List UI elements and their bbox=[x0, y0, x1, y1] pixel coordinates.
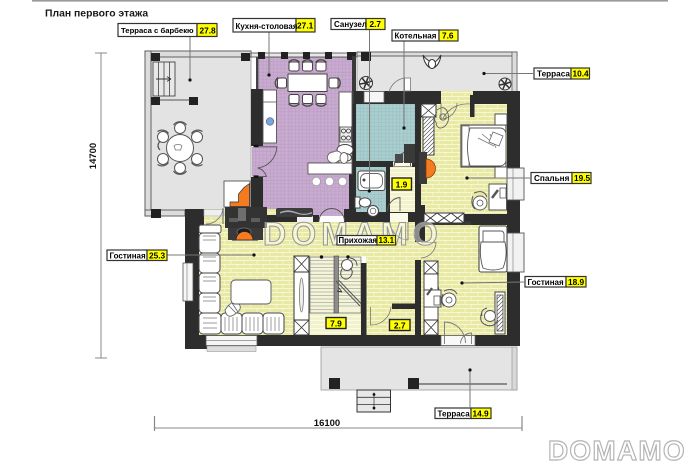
svg-text:7.6: 7.6 bbox=[442, 31, 454, 41]
svg-text:Терраса: Терраса bbox=[537, 70, 570, 79]
svg-text:19.5: 19.5 bbox=[574, 173, 591, 183]
svg-text:16100: 16100 bbox=[314, 418, 340, 429]
svg-text:27.1: 27.1 bbox=[297, 21, 314, 31]
svg-text:План первого этажа: План первого этажа bbox=[45, 9, 148, 20]
svg-text:27.8: 27.8 bbox=[200, 25, 217, 35]
svg-text:Гостиная: Гостиная bbox=[110, 251, 146, 260]
svg-text:DOMAMO: DOMAMO bbox=[263, 216, 443, 252]
svg-text:Прихожая: Прихожая bbox=[339, 236, 377, 245]
svg-text:10.4: 10.4 bbox=[573, 69, 590, 79]
svg-text:14700: 14700 bbox=[88, 143, 99, 169]
svg-text:Котельная: Котельная bbox=[395, 32, 437, 41]
svg-text:Кухня-столовая: Кухня-столовая bbox=[236, 22, 298, 31]
svg-text:2.7: 2.7 bbox=[394, 320, 406, 330]
svg-text:7.9: 7.9 bbox=[330, 318, 342, 328]
svg-text:Гостиная: Гостиная bbox=[528, 278, 564, 287]
svg-text:DOMAMO: DOMAMO bbox=[548, 435, 686, 466]
svg-text:14.9: 14.9 bbox=[473, 408, 490, 418]
svg-text:25.3: 25.3 bbox=[149, 250, 166, 260]
svg-text:2.7: 2.7 bbox=[370, 19, 382, 29]
svg-text:13.1: 13.1 bbox=[379, 236, 395, 245]
svg-text:18.9: 18.9 bbox=[568, 277, 585, 287]
svg-text:Терраса: Терраса bbox=[438, 409, 471, 418]
svg-text:1.9: 1.9 bbox=[396, 179, 408, 189]
svg-text:Терраса с барбекю: Терраса с барбекю bbox=[121, 26, 194, 35]
svg-text:Санузел: Санузел bbox=[334, 20, 367, 29]
svg-text:Спальня: Спальня bbox=[534, 174, 570, 183]
